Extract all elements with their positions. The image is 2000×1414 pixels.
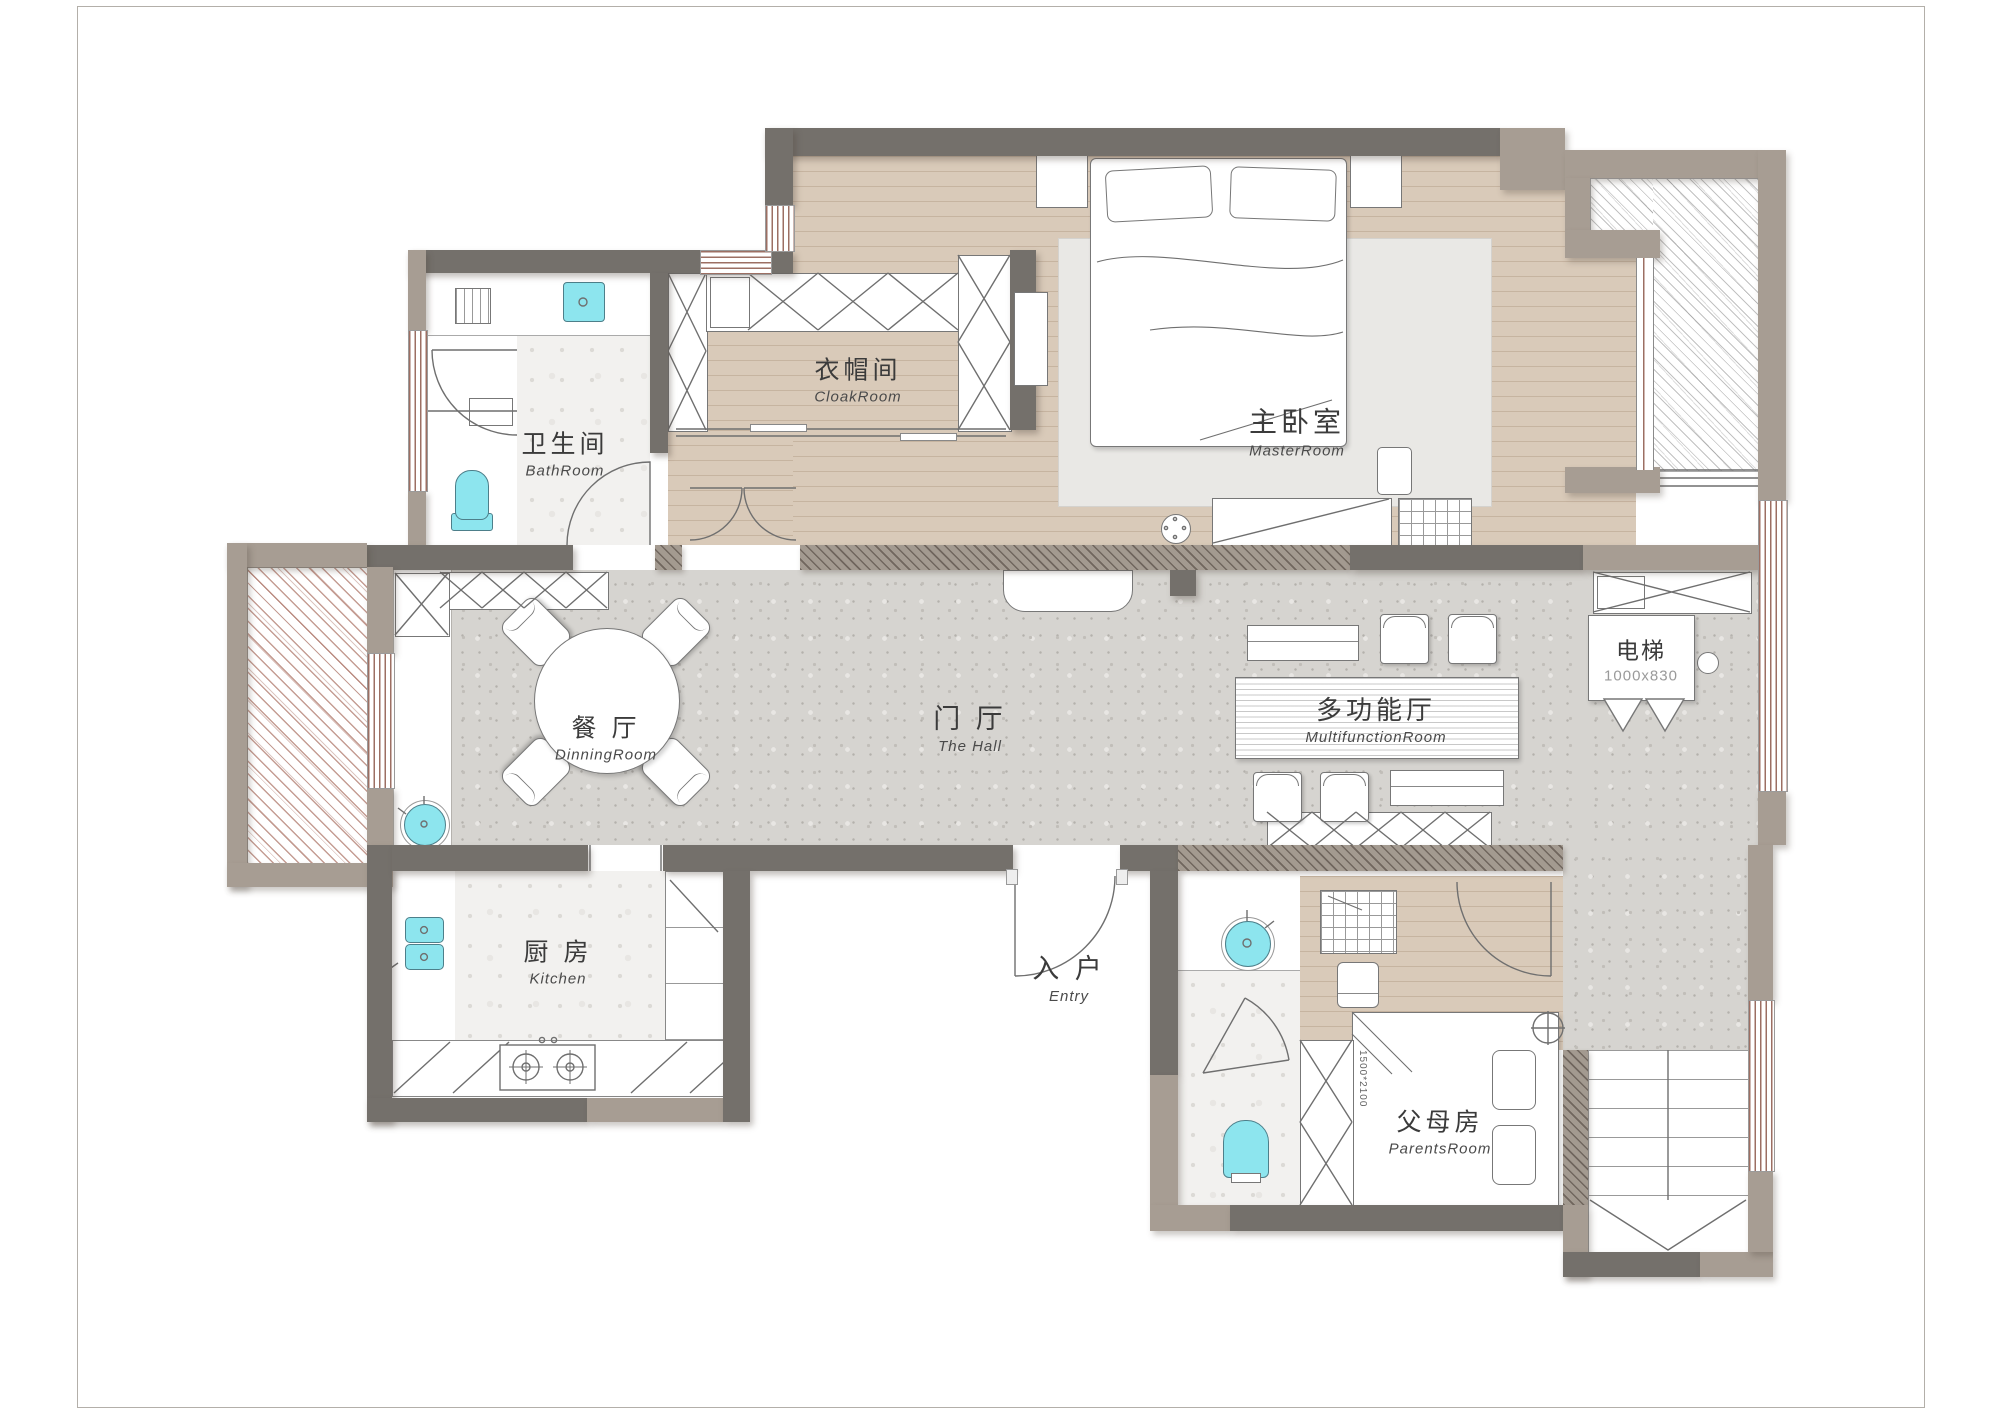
wall-stairs-bottom xyxy=(1563,1252,1700,1277)
wall-right-upper xyxy=(1758,150,1786,500)
label-elevator-size: 1000x830 xyxy=(1604,668,1678,685)
wall-balcony-top xyxy=(1565,150,1758,178)
kitchen-bottom-cabinets xyxy=(392,1040,750,1097)
parents-toilet-base xyxy=(1231,1173,1261,1183)
wall-kitchen-bottom-taupe xyxy=(587,1098,723,1122)
window-bath-left xyxy=(408,330,428,492)
cloak-sliding-leaf-1 xyxy=(750,424,807,432)
wall-balcony-stub-v xyxy=(1565,178,1590,233)
west-counter-sink xyxy=(404,804,446,846)
cloak-cabinet-right xyxy=(958,255,1012,432)
wall-master-top xyxy=(765,128,1500,156)
northeast-balcony-hatch-2 xyxy=(1590,178,1653,232)
wall-kitchen-top-e xyxy=(663,845,1013,871)
mf-bench-bottom xyxy=(1390,770,1504,806)
label-master-en: MasterRoom xyxy=(1249,443,1345,460)
wall-hall-stub xyxy=(1170,570,1196,596)
wall-wbalcony-inner-top xyxy=(367,567,393,653)
northeast-balcony-hatch xyxy=(1652,178,1760,472)
label-multifunction-en: MultifunctionRoom xyxy=(1305,729,1446,746)
cloak-appliance xyxy=(710,277,750,328)
wall-ne-corner xyxy=(1500,128,1565,190)
parents-pillow-1 xyxy=(1492,1050,1536,1110)
label-cloakroom-en: CloakRoom xyxy=(814,389,901,406)
wall-master-left xyxy=(765,128,793,205)
entry-door-jamb-left xyxy=(1006,869,1018,885)
window-cloak-top xyxy=(700,250,772,275)
label-bathroom: 卫生间 BathRoom xyxy=(521,425,608,480)
label-cloakroom: 衣帽间 CloakRoom xyxy=(814,351,901,406)
label-elevator-zh: 电梯 xyxy=(1604,632,1678,666)
corridor-floor xyxy=(668,430,793,545)
label-kitchen-zh: 厨 房 xyxy=(524,933,593,969)
parents-wardrobe xyxy=(1300,1040,1354,1207)
elevator-call-button xyxy=(1697,652,1719,674)
hall-console xyxy=(1003,570,1133,612)
kitchen-sink-lower xyxy=(405,944,444,970)
label-entry-en: Entry xyxy=(1032,988,1106,1005)
label-entry: 入 户 Entry xyxy=(1032,947,1106,1005)
wall-kitchen-east xyxy=(723,871,750,1122)
label-bathroom-zh: 卫生间 xyxy=(521,425,608,461)
wall-bath-bottom-corner xyxy=(227,543,367,567)
mf-chair-1 xyxy=(1380,614,1429,664)
wall-bath-left-top xyxy=(408,250,426,330)
wall-stairs-east-low xyxy=(1748,1170,1773,1252)
wall-kitchen-west xyxy=(367,845,392,1122)
label-parents: 父母房 ParentsRoom xyxy=(1389,1103,1492,1158)
label-multifunction-zh: 多功能厅 xyxy=(1305,690,1446,727)
label-bathroom-en: BathRoom xyxy=(521,463,608,480)
wall-wbalcony-left xyxy=(227,543,247,887)
label-cloakroom-zh: 衣帽间 xyxy=(814,351,901,387)
label-dining: 餐 厅 DinningRoom xyxy=(555,709,657,764)
counter-x-box xyxy=(395,573,450,637)
label-hall: 门 厅 The Hall xyxy=(933,697,1007,755)
wall-balcony-stub-h xyxy=(1565,230,1660,258)
label-hall-zh: 门 厅 xyxy=(933,697,1007,736)
label-master-zh: 主卧室 xyxy=(1249,401,1345,441)
wall-parents-west-taupe xyxy=(1150,1075,1178,1205)
wall-right-mid xyxy=(1758,790,1786,845)
bath-sink xyxy=(563,282,605,322)
window-right-wall xyxy=(1758,500,1788,792)
entry-door-jamb-right xyxy=(1116,869,1128,885)
label-multifunction: 多功能厅 MultifunctionRoom xyxy=(1305,690,1446,746)
wall-kitchen-bottom xyxy=(367,1098,587,1122)
window-master-balcony xyxy=(1636,258,1654,470)
parents-stool xyxy=(1337,962,1379,1008)
wall-bath-right xyxy=(650,273,668,453)
window-master-left xyxy=(765,205,795,252)
parents-bed-dimension: 1500*2100 xyxy=(1357,1050,1368,1107)
master-pillow-left xyxy=(1105,165,1214,222)
label-dining-en: DinningRoom xyxy=(555,747,657,764)
label-hall-en: The Hall xyxy=(933,738,1007,755)
parents-sink xyxy=(1225,921,1271,967)
wall-wbalcony-inner-bot xyxy=(367,787,393,845)
master-pillow-right xyxy=(1229,166,1337,222)
wall-parents-west xyxy=(1150,871,1178,1075)
cloak-cabinet-left xyxy=(668,273,708,432)
wall-stairs-east-top xyxy=(1748,845,1773,1000)
label-dining-zh: 餐 厅 xyxy=(555,709,657,745)
label-parents-zh: 父母房 xyxy=(1389,1103,1492,1139)
label-master: 主卧室 MasterRoom xyxy=(1249,401,1345,460)
wall-master-se xyxy=(1565,467,1660,493)
label-kitchen-en: Kitchen xyxy=(524,971,593,988)
bath-shelf xyxy=(469,398,513,426)
wall-parents-south-taupe xyxy=(1150,1205,1230,1231)
elevator-shaft-inner xyxy=(1597,576,1645,609)
west-balcony-hatch xyxy=(247,567,369,865)
stairs xyxy=(1588,1050,1750,1202)
wall-elevator-north xyxy=(1583,545,1758,570)
wall-kitchen-top-w xyxy=(392,845,588,871)
wall-parents-south xyxy=(1230,1205,1563,1231)
master-side-table xyxy=(1161,514,1191,544)
master-mirror-board xyxy=(1014,292,1048,386)
nightstand-right xyxy=(1350,152,1402,208)
wall-hall-dark-east xyxy=(1350,545,1583,570)
tv-bench xyxy=(1212,498,1392,546)
stairs-landing xyxy=(1588,1200,1750,1253)
wall-parents-hatch-top xyxy=(1178,845,1563,871)
label-entry-zh: 入 户 xyxy=(1032,947,1106,986)
parents-toilet-bowl xyxy=(1223,1120,1269,1178)
nightstand-left xyxy=(1036,152,1088,208)
wall-bath-bottom xyxy=(367,545,573,570)
cloak-sliding-leaf-2 xyxy=(900,433,957,441)
window-stairs-east xyxy=(1748,1000,1775,1172)
tv-grid-mat xyxy=(1398,498,1472,546)
window-wbalcony-inner xyxy=(367,653,395,789)
wall-stairs-west xyxy=(1563,1050,1588,1205)
wall-bath-left-bottom xyxy=(408,490,426,545)
kitchen-sink-upper xyxy=(405,917,444,943)
bath-toilet-bowl xyxy=(455,470,489,520)
label-kitchen: 厨 房 Kitchen xyxy=(524,933,593,988)
wall-entry-east-corner xyxy=(1120,845,1178,871)
wall-hall-hatch-main xyxy=(800,545,1350,570)
master-stool xyxy=(1377,447,1412,495)
parents-pillow-2 xyxy=(1492,1125,1536,1185)
bath-shower-head xyxy=(455,288,491,324)
floor-plan: 卫生间 BathRoom 衣帽间 CloakRoom 主卧室 MasterRoo… xyxy=(0,0,2000,1414)
kitchen-fridge-column xyxy=(665,871,725,1042)
mf-bench-top xyxy=(1247,625,1359,661)
mf-chair-3 xyxy=(1253,772,1302,822)
mf-chair-2 xyxy=(1448,614,1497,664)
hall-floor-southeast xyxy=(1563,845,1748,1050)
mf-chair-4 xyxy=(1320,772,1369,822)
parents-dressing-table xyxy=(1320,890,1397,954)
label-elevator: 电梯 1000x830 xyxy=(1604,632,1678,685)
wall-hall-hatch-west xyxy=(655,545,682,570)
label-parents-en: ParentsRoom xyxy=(1389,1141,1492,1158)
wall-stairs-bottom-taupe xyxy=(1700,1252,1773,1277)
